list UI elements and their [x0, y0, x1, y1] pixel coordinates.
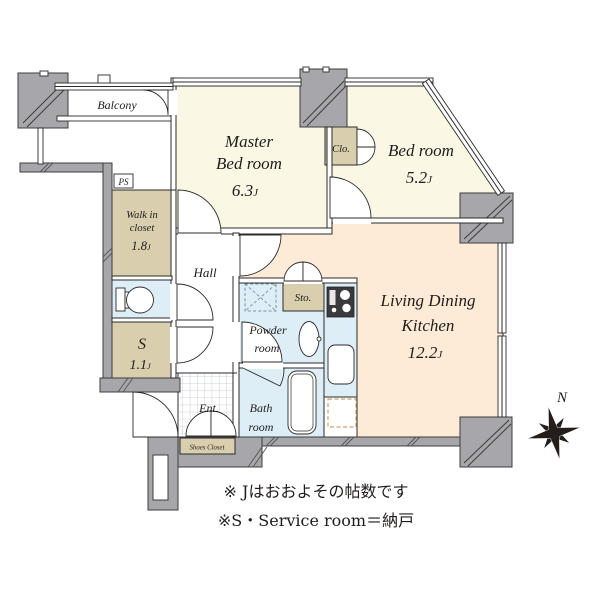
closet-label: Clo.: [332, 144, 350, 155]
ps-label: PS: [118, 177, 129, 187]
shaft-void: [153, 455, 168, 500]
floor-plan-page: Balcony Master Bed room 6.3J Bed room 5.…: [0, 0, 600, 600]
wall-toilet-s: [112, 318, 172, 322]
powder-room-label-1: Powder: [248, 323, 287, 337]
bedroom-label: Bed room: [388, 141, 454, 160]
walk-in-closet-label-2: closet: [130, 223, 156, 234]
compass-north-label: N: [556, 390, 568, 406]
outer-wall-left-horizontal: [20, 163, 112, 172]
bath-room-label-1: Bath: [250, 401, 273, 415]
footnote-line-2: ※S・Service room＝納戸: [218, 511, 414, 530]
balcony-railing: [57, 116, 171, 121]
service-room-label: S: [138, 336, 146, 353]
outer-wall-bottom: [235, 437, 460, 446]
storage-label: Sto.: [295, 292, 312, 304]
compass: N: [522, 390, 586, 465]
floor-plan: Balcony Master Bed room 6.3J Bed room 5.…: [0, 0, 600, 600]
corridor-railing: [38, 128, 43, 164]
walk-in-closet-floor: [112, 190, 172, 278]
shoes-closet-label: Shoes Closet: [190, 445, 226, 452]
kitchen-sink-icon: [328, 345, 354, 384]
outer-wall-entry: [100, 378, 180, 392]
entrance-label: Ent.: [198, 401, 219, 415]
powder-room-label-2: room: [255, 341, 280, 355]
toilet-icon: [116, 287, 154, 313]
bathtub-icon: [288, 371, 316, 434]
compass-rose-icon: [522, 401, 586, 465]
ldk-label-1: Living Dining: [380, 291, 476, 310]
block-notch: [303, 67, 309, 72]
walk-in-closet-label-1: Walk in: [126, 210, 157, 221]
block-notch: [323, 67, 329, 72]
footnotes: ※ Jはおおよその帖数です ※S・Service room＝納戸: [218, 482, 414, 530]
block-notch: [40, 71, 48, 76]
footnote-line-1: ※ Jはおおよその帖数です: [224, 482, 409, 501]
master-bedroom-label-1: Master: [224, 132, 274, 151]
ldk-label-2: Kitchen: [401, 316, 455, 335]
hall-label: Hall: [192, 265, 217, 280]
balcony-label: Balcony: [97, 98, 137, 112]
bath-room-label-2: room: [249, 420, 274, 434]
stove-icon: [327, 287, 354, 317]
entrance-door: [133, 392, 178, 437]
refrigerator-space: [328, 399, 356, 427]
wall-wic-toilet: [112, 276, 172, 280]
master-bedroom-label-2: Bed room: [216, 154, 282, 173]
outer-wall-left-vertical: [103, 163, 112, 392]
